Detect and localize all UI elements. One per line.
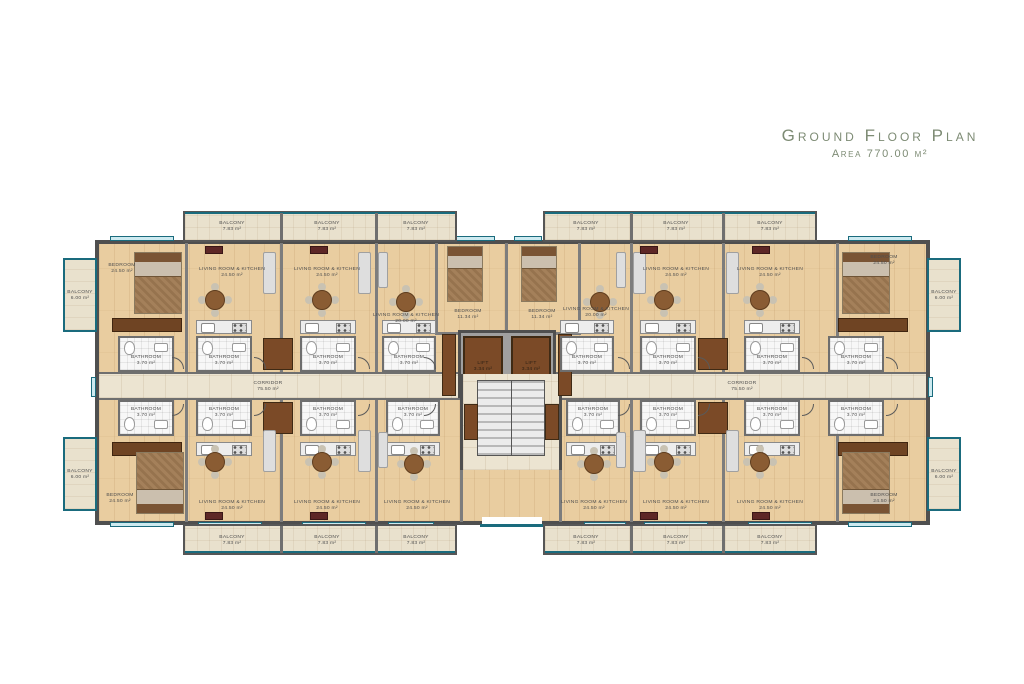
- room-label-bathroom: BATHROOM3.70 m²: [313, 406, 343, 419]
- balcony-divider: [722, 526, 725, 553]
- room-label-bedroom-small: BEDROOM11.34 m²: [528, 308, 555, 321]
- room-label-bedroom: BEDROOM24.50 m²: [106, 492, 133, 505]
- window: [928, 377, 933, 397]
- room-label-balcony: BALCONY7.83 m²: [403, 534, 428, 547]
- balcony-divider: [280, 213, 283, 240]
- sofa: [378, 432, 388, 468]
- balcony-divider: [722, 213, 725, 240]
- page-subtitle: Area 770.00 m²: [768, 148, 992, 160]
- room-label-lift: LIFT3.34 m²: [522, 360, 541, 373]
- dining-table: [584, 454, 604, 474]
- room-label-balcony: BALCONY7.83 m²: [573, 220, 598, 233]
- room-label-side-balcony: BALCONY6.00 m²: [67, 289, 92, 302]
- duct: [464, 404, 478, 440]
- balcony-rail: [545, 551, 815, 553]
- room-label-living: LIVING ROOM & KITCHEN24.50 m²: [294, 499, 360, 512]
- duct: [442, 334, 456, 396]
- duct: [263, 338, 293, 370]
- wardrobe: [838, 318, 908, 332]
- room-label-bathroom: BATHROOM3.70 m²: [209, 406, 239, 419]
- dining-table: [750, 452, 770, 472]
- bed: [447, 246, 483, 302]
- bed: [134, 252, 182, 314]
- tv-unit: [310, 512, 328, 520]
- sofa: [616, 252, 626, 288]
- partition-wall: [185, 400, 188, 522]
- room-label-balcony: BALCONY7.83 m²: [219, 220, 244, 233]
- window: [848, 522, 912, 527]
- room-label-living: LIVING ROOM & KITCHEN24.50 m²: [294, 266, 360, 279]
- room-label-bathroom: BATHROOM3.70 m²: [757, 406, 787, 419]
- balcony-divider: [630, 526, 633, 553]
- room-label-lift: LIFT3.34 m²: [474, 360, 493, 373]
- entrance-threshold: [480, 524, 544, 527]
- window: [514, 236, 542, 241]
- kitchen-counter: [300, 320, 356, 334]
- sofa: [616, 432, 626, 468]
- room-label-living: LIVING ROOM & KITCHEN24.50 m²: [737, 499, 803, 512]
- bed: [521, 246, 557, 302]
- kitchen-counter: [640, 320, 696, 334]
- room-label-bathroom: BATHROOM3.70 m²: [209, 354, 239, 367]
- window: [91, 377, 96, 397]
- room-label-bathroom: BATHROOM3.70 m²: [653, 354, 683, 367]
- partition-wall: [505, 243, 508, 335]
- room-label-bathroom: BATHROOM3.70 m²: [653, 406, 683, 419]
- sofa: [263, 430, 276, 472]
- room-label-living: LIVING ROOM & KITCHEN24.50 m²: [643, 266, 709, 279]
- room-label-bathroom: BATHROOM3.70 m²: [313, 354, 343, 367]
- room-label-bathroom: BATHROOM3.70 m²: [578, 406, 608, 419]
- balcony-divider: [375, 213, 378, 240]
- kitchen-counter: [744, 320, 800, 334]
- corridor-label: CORRIDOR75.50 m²: [254, 380, 283, 393]
- room-label-bathroom: BATHROOM3.70 m²: [394, 354, 424, 367]
- sofa: [726, 430, 739, 472]
- room-label-living-small: LIVING ROOM & KITCHEN20.00 m²: [563, 306, 629, 319]
- dining-table: [205, 452, 225, 472]
- tv-unit: [205, 246, 223, 254]
- page-title: Ground Floor Plan: [768, 126, 992, 146]
- tv-unit: [752, 246, 770, 254]
- room-label-balcony: BALCONY7.83 m²: [663, 534, 688, 547]
- room-label-living: LIVING ROOM & KITCHEN24.50 m²: [199, 266, 265, 279]
- dining-table: [750, 290, 770, 310]
- room-label-side-balcony: BALCONY6.00 m²: [931, 468, 956, 481]
- room-label-side-balcony: BALCONY6.00 m²: [67, 468, 92, 481]
- room-label-balcony: BALCONY7.83 m²: [219, 534, 244, 547]
- room-label-balcony: BALCONY7.83 m²: [573, 534, 598, 547]
- room-label-bedroom: BEDROOM24.50 m²: [870, 254, 897, 267]
- room-label-bathroom: BATHROOM3.70 m²: [131, 354, 161, 367]
- room-label-balcony: BALCONY7.83 m²: [663, 220, 688, 233]
- dining-table: [312, 290, 332, 310]
- balcony-rail: [185, 551, 455, 553]
- dining-table: [205, 290, 225, 310]
- room-label-living: LIVING ROOM & KITCHEN24.50 m²: [737, 266, 803, 279]
- bed: [136, 452, 184, 514]
- staircase: [477, 380, 545, 456]
- room-label-bathroom: BATHROOM3.70 m²: [572, 354, 602, 367]
- drawing-title-block: Ground Floor Plan Area 770.00 m²: [768, 126, 992, 160]
- room-label-living: LIVING ROOM & KITCHEN24.50 m²: [199, 499, 265, 512]
- partition-wall: [185, 243, 188, 372]
- kitchen-counter: [196, 442, 252, 456]
- tv-unit: [752, 512, 770, 520]
- kitchen-counter: [196, 320, 252, 334]
- tv-unit: [640, 512, 658, 520]
- balcony-divider: [630, 213, 633, 240]
- room-label-living-small: LIVING ROOM & KITCHEN20.00 m²: [373, 312, 439, 325]
- dining-table: [654, 290, 674, 310]
- window: [110, 236, 174, 241]
- room-label-balcony: BALCONY7.83 m²: [314, 534, 339, 547]
- dining-table: [404, 454, 424, 474]
- balcony-rail: [545, 212, 815, 214]
- window: [110, 522, 174, 527]
- kitchen-counter: [560, 320, 614, 334]
- balcony-divider: [280, 526, 283, 553]
- room-label-living: LIVING ROOM & KITCHEN24.50 m²: [561, 499, 627, 512]
- room-label-bathroom: BATHROOM3.70 m²: [841, 354, 871, 367]
- room-label-bathroom: BATHROOM3.70 m²: [131, 406, 161, 419]
- balcony-rail: [185, 212, 455, 214]
- room-label-bedroom-small: BEDROOM11.34 m²: [454, 308, 481, 321]
- room-label-balcony: BALCONY7.83 m²: [403, 220, 428, 233]
- room-label-living: LIVING ROOM & KITCHEN24.50 m²: [384, 499, 450, 512]
- room-label-bathroom: BATHROOM3.70 m²: [398, 406, 428, 419]
- tv-unit: [310, 246, 328, 254]
- room-label-bathroom: BATHROOM3.70 m²: [841, 406, 871, 419]
- room-label-living: LIVING ROOM & KITCHEN24.50 m²: [643, 499, 709, 512]
- bed: [842, 452, 890, 514]
- sofa: [633, 430, 646, 472]
- sofa: [358, 430, 371, 472]
- wardrobe: [112, 318, 182, 332]
- window: [848, 236, 912, 241]
- tv-unit: [640, 246, 658, 254]
- sofa: [378, 252, 388, 288]
- room-label-balcony: BALCONY7.83 m²: [314, 220, 339, 233]
- duct: [545, 404, 559, 440]
- dining-table: [396, 292, 416, 312]
- room-label-bedroom: BEDROOM24.50 m²: [870, 492, 897, 505]
- balcony-divider: [375, 526, 378, 553]
- dining-table: [654, 452, 674, 472]
- room-label-balcony: BALCONY7.83 m²: [757, 220, 782, 233]
- dining-table: [312, 452, 332, 472]
- room-label-balcony: BALCONY7.83 m²: [757, 534, 782, 547]
- room-label-bathroom: BATHROOM3.70 m²: [757, 354, 787, 367]
- room-label-bedroom: BEDROOM24.50 m²: [108, 262, 135, 275]
- tv-unit: [205, 512, 223, 520]
- corridor-label: CORRIDOR75.50 m²: [728, 380, 757, 393]
- room-label-side-balcony: BALCONY6.00 m²: [931, 289, 956, 302]
